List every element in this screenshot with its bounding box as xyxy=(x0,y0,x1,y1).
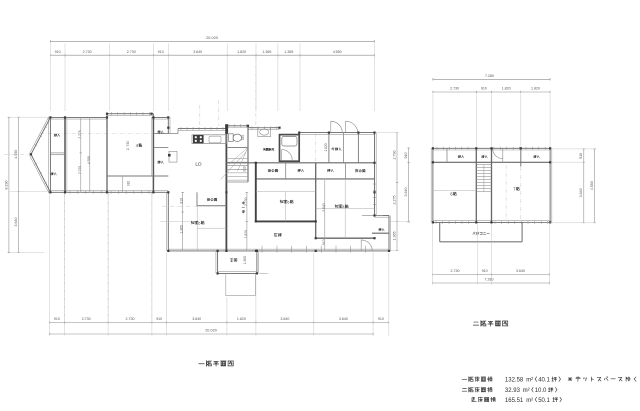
svg-text:3.640: 3.640 xyxy=(579,188,583,197)
svg-text:1.820: 1.820 xyxy=(244,230,248,238)
svg-text:3.640: 3.640 xyxy=(339,317,348,321)
svg-text:m²: m² xyxy=(523,388,530,394)
svg-text:3.640: 3.640 xyxy=(404,188,408,197)
svg-text:m²: m² xyxy=(526,378,533,384)
svg-text:1.820: 1.820 xyxy=(324,143,328,151)
svg-text:50.1: 50.1 xyxy=(538,398,550,404)
svg-text:2.730: 2.730 xyxy=(83,50,92,54)
svg-text:20.020: 20.020 xyxy=(206,36,218,40)
svg-text:1.365: 1.365 xyxy=(392,232,396,241)
svg-text:910: 910 xyxy=(481,87,487,91)
svg-text:910: 910 xyxy=(158,50,164,54)
svg-text:LD: LD xyxy=(195,161,202,167)
svg-text:910: 910 xyxy=(127,181,131,187)
svg-text:4.550: 4.550 xyxy=(87,156,91,164)
svg-text:2.730: 2.730 xyxy=(127,50,136,54)
svg-text:910: 910 xyxy=(404,153,408,159)
svg-text:1.365: 1.365 xyxy=(284,50,293,54)
svg-text:1.820: 1.820 xyxy=(531,87,540,91)
svg-text:2.730: 2.730 xyxy=(450,87,459,91)
svg-text:20.020: 20.020 xyxy=(205,328,217,332)
svg-text:910: 910 xyxy=(54,317,60,321)
svg-text:7.280: 7.280 xyxy=(485,74,494,78)
svg-text:3.640: 3.640 xyxy=(193,50,202,54)
svg-text:3.640: 3.640 xyxy=(14,218,18,227)
svg-text:910: 910 xyxy=(180,198,184,204)
svg-text:4.550: 4.550 xyxy=(333,50,342,54)
svg-text:0: 0 xyxy=(126,141,130,143)
svg-text:910: 910 xyxy=(322,239,326,245)
svg-text:1.820: 1.820 xyxy=(237,317,246,321)
svg-text:7.280: 7.280 xyxy=(485,278,494,282)
svg-text:910: 910 xyxy=(378,317,384,321)
svg-text:2.275: 2.275 xyxy=(78,166,82,174)
svg-text:40.1: 40.1 xyxy=(538,378,550,384)
svg-text:.: . xyxy=(126,147,130,148)
svg-text:3.640: 3.640 xyxy=(516,269,525,273)
svg-text:10.0: 10.0 xyxy=(535,388,547,394)
svg-text:2.730: 2.730 xyxy=(451,269,460,273)
svg-text:132.58: 132.58 xyxy=(505,378,524,384)
svg-text:910: 910 xyxy=(55,50,61,54)
svg-text:8.190: 8.190 xyxy=(4,181,8,190)
svg-text:910: 910 xyxy=(579,153,583,159)
svg-text:2.730: 2.730 xyxy=(244,197,248,205)
svg-text:910: 910 xyxy=(482,269,488,273)
svg-text:3.640: 3.640 xyxy=(192,317,201,321)
svg-text:2.730: 2.730 xyxy=(82,317,91,321)
svg-text:2.275: 2.275 xyxy=(392,196,396,205)
svg-text:1.820: 1.820 xyxy=(237,50,246,54)
svg-text:m²: m² xyxy=(526,398,533,404)
svg-text:910: 910 xyxy=(156,317,162,321)
svg-text:1.365: 1.365 xyxy=(262,50,271,54)
svg-text:165.51: 165.51 xyxy=(505,398,524,404)
svg-text:1.820: 1.820 xyxy=(502,87,511,91)
svg-text:910: 910 xyxy=(243,166,247,172)
svg-text:32.93: 32.93 xyxy=(505,388,521,394)
svg-text:2.730: 2.730 xyxy=(126,317,135,321)
svg-text:1.365: 1.365 xyxy=(180,225,184,233)
svg-text:3.640: 3.640 xyxy=(322,203,326,211)
svg-text:3.640: 3.640 xyxy=(280,317,289,321)
svg-text:2.730: 2.730 xyxy=(392,151,396,160)
svg-text:2.275: 2.275 xyxy=(78,130,82,138)
svg-text:1.365: 1.365 xyxy=(243,256,247,264)
svg-text:4.550: 4.550 xyxy=(590,181,594,190)
svg-text:910: 910 xyxy=(241,135,245,141)
